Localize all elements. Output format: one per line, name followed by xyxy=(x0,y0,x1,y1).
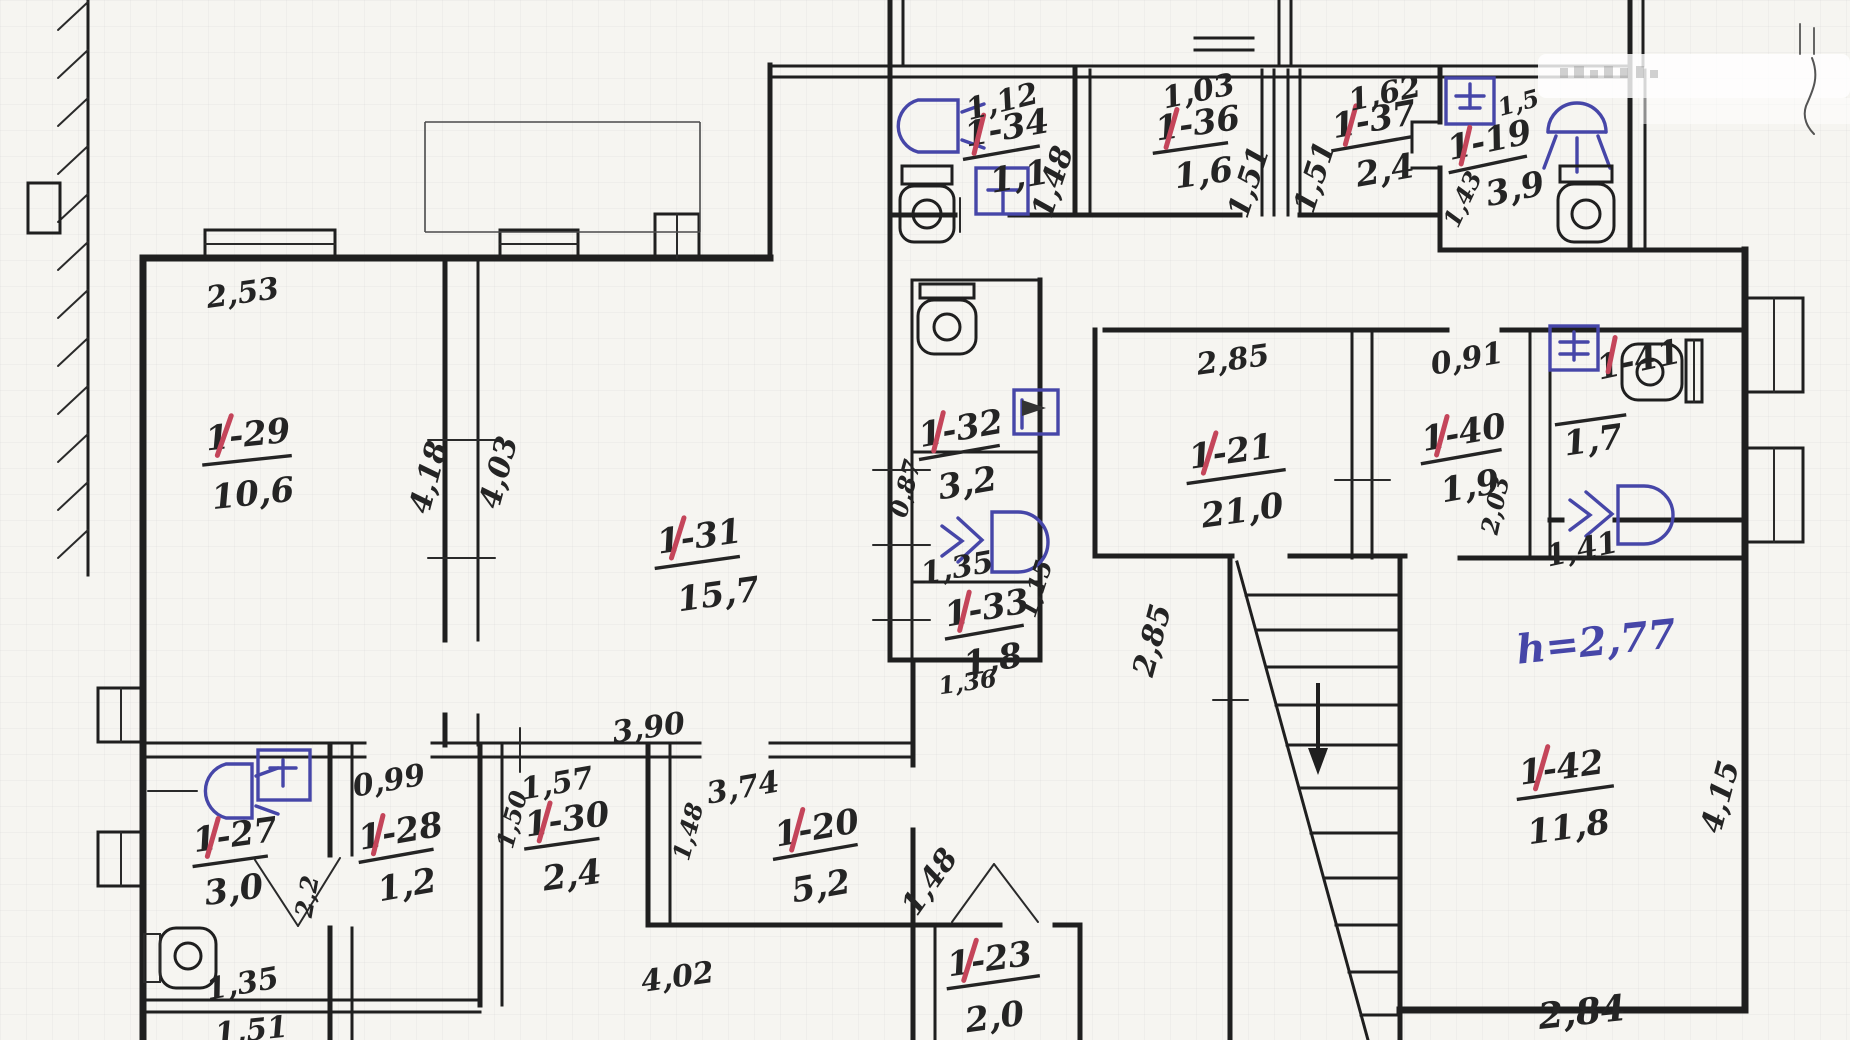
room-label-1-32: 1-32 3,2 xyxy=(912,402,1016,511)
svg-text:2,2: 2,2 xyxy=(289,873,325,920)
svg-text:1,48: 1,48 xyxy=(895,842,966,922)
boiler-icon xyxy=(1550,326,1598,370)
toilet-icon xyxy=(900,166,954,242)
svg-text:1,5: 1,5 xyxy=(1494,83,1542,122)
svg-text:4,15: 4,15 xyxy=(1694,757,1747,837)
svg-text:1,43: 1,43 xyxy=(1437,166,1488,231)
svg-text:1-31: 1-31 xyxy=(654,511,744,562)
room-label-1-23: 1-23 2,0 xyxy=(941,932,1048,1040)
exterior-hatched-wall xyxy=(28,0,88,575)
room-label-1-31: 1-31 15,7 xyxy=(648,509,762,623)
svg-text:1,2: 1,2 xyxy=(374,861,439,911)
toilet-icon xyxy=(1558,166,1614,242)
svg-text:2,85: 2,85 xyxy=(1126,601,1179,682)
svg-text:2,53: 2,53 xyxy=(203,271,281,316)
floor-plan-drawing: 1-34 1,1 1-36 1,6 1-37 2,4 1-19 3,9 1-29… xyxy=(0,0,1850,1040)
room-label-1-30: 1-30 2,4 xyxy=(518,794,620,902)
svg-text:2,0: 2,0 xyxy=(962,993,1027,1040)
svg-text:1,51: 1,51 xyxy=(213,1010,289,1040)
top-wall-stubs xyxy=(890,0,1643,66)
svg-text:5,2: 5,2 xyxy=(788,862,853,912)
svg-text:1-19: 1-19 xyxy=(1444,112,1536,169)
svg-text:1,51: 1,51 xyxy=(1287,137,1343,217)
shower-icon xyxy=(1544,103,1610,172)
svg-text:2,4: 2,4 xyxy=(1352,146,1418,196)
watermark-band xyxy=(1538,24,1850,134)
svg-text:1,36: 1,36 xyxy=(937,663,999,700)
svg-text:4,02: 4,02 xyxy=(639,955,716,1000)
floor-plan-sheet: 1-34 1,1 1-36 1,6 1-37 2,4 1-19 3,9 1-29… xyxy=(0,0,1850,1040)
ceiling-height-note: h=2,77 xyxy=(1514,610,1678,673)
svg-text:1-41: 1-41 xyxy=(1593,332,1685,389)
svg-text:0,99: 0,99 xyxy=(350,757,428,804)
svg-text:11,8: 11,8 xyxy=(1525,802,1613,853)
svg-text:1-27: 1-27 xyxy=(190,810,280,861)
svg-text:2,85: 2,85 xyxy=(1193,338,1271,383)
room-label-1-28: 1-28 1,2 xyxy=(351,805,455,913)
svg-text:1-42: 1-42 xyxy=(1516,742,1606,793)
room-label-1-27: 1-27 3,0 xyxy=(186,810,288,916)
svg-text:3,74: 3,74 xyxy=(704,765,782,812)
svg-text:3,9: 3,9 xyxy=(1482,164,1548,215)
svg-text:1,15: 1,15 xyxy=(1013,556,1059,621)
room-label-1-20: 1-20 5,2 xyxy=(765,800,872,913)
svg-text:3,0: 3,0 xyxy=(202,866,266,914)
boiler-icon xyxy=(1446,78,1494,124)
svg-text:2,84: 2,84 xyxy=(1535,987,1628,1038)
svg-text:1-21: 1-21 xyxy=(1186,426,1276,477)
svg-text:1,41: 1,41 xyxy=(1543,525,1622,574)
svg-text:0,91: 0,91 xyxy=(1428,335,1506,382)
meter-box-icon xyxy=(1014,390,1058,434)
svg-text:2,4: 2,4 xyxy=(539,852,604,900)
stair-direction-arrow xyxy=(1308,685,1328,775)
room-label-1-42: 1-42 11,8 xyxy=(1510,738,1621,854)
svg-text:1,48: 1,48 xyxy=(666,799,709,863)
staircase xyxy=(1230,556,1400,1040)
svg-text:15,7: 15,7 xyxy=(675,569,763,620)
svg-text:1,7: 1,7 xyxy=(1561,417,1625,465)
toilet-icon xyxy=(918,284,976,354)
svg-text:4,18: 4,18 xyxy=(403,437,456,517)
svg-text:21,0: 21,0 xyxy=(1198,485,1287,536)
svg-text:4,03: 4,03 xyxy=(473,433,526,513)
svg-text:10,6: 10,6 xyxy=(210,470,297,518)
room-label-1-21: 1-21 21,0 xyxy=(1180,424,1293,538)
svg-text:3,2: 3,2 xyxy=(935,459,1000,509)
room-label-1-29: 1-29 10,6 xyxy=(197,410,298,519)
svg-text:1,6: 1,6 xyxy=(1172,149,1236,197)
svg-text:1,35: 1,35 xyxy=(918,545,996,592)
